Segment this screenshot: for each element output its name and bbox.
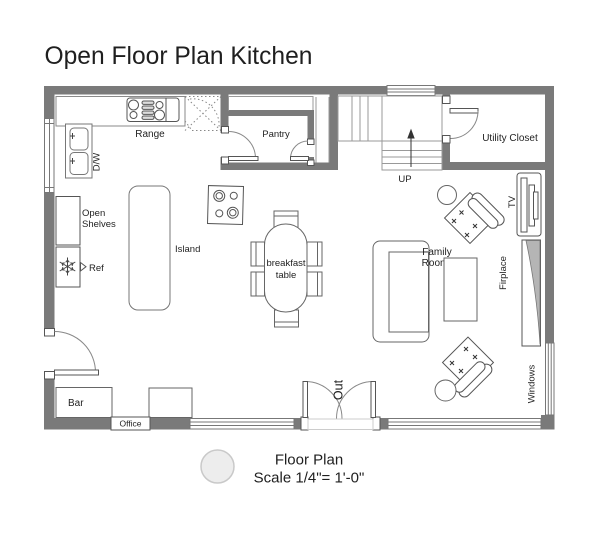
svg-text:Family: Family bbox=[422, 247, 451, 258]
svg-text:Ref: Ref bbox=[89, 263, 104, 274]
svg-text:breakfast: breakfast bbox=[266, 258, 305, 269]
svg-text:Open: Open bbox=[82, 208, 105, 219]
svg-text:D/W: D/W bbox=[92, 153, 103, 172]
svg-text:Utility Closet: Utility Closet bbox=[482, 133, 538, 144]
svg-text:UP: UP bbox=[398, 174, 411, 185]
svg-text:Open Floor Plan Kitchen: Open Floor Plan Kitchen bbox=[45, 43, 313, 70]
svg-text:Out: Out bbox=[332, 379, 346, 400]
svg-text:Island: Island bbox=[175, 244, 200, 255]
svg-text:Firplace: Firplace bbox=[498, 256, 509, 290]
svg-text:table: table bbox=[276, 270, 297, 281]
svg-text:Windows: Windows bbox=[527, 364, 538, 403]
svg-text:Bar: Bar bbox=[68, 398, 84, 409]
svg-text:Shelves: Shelves bbox=[82, 219, 116, 230]
svg-text:TV: TV bbox=[507, 195, 518, 208]
svg-text:Range: Range bbox=[135, 129, 165, 140]
svg-text:Floor Plan: Floor Plan bbox=[275, 452, 343, 469]
svg-text:Office: Office bbox=[119, 419, 141, 429]
svg-text:Pantry: Pantry bbox=[262, 129, 290, 140]
svg-text:Scale 1/4"= 1'-0": Scale 1/4"= 1'-0" bbox=[254, 470, 365, 487]
